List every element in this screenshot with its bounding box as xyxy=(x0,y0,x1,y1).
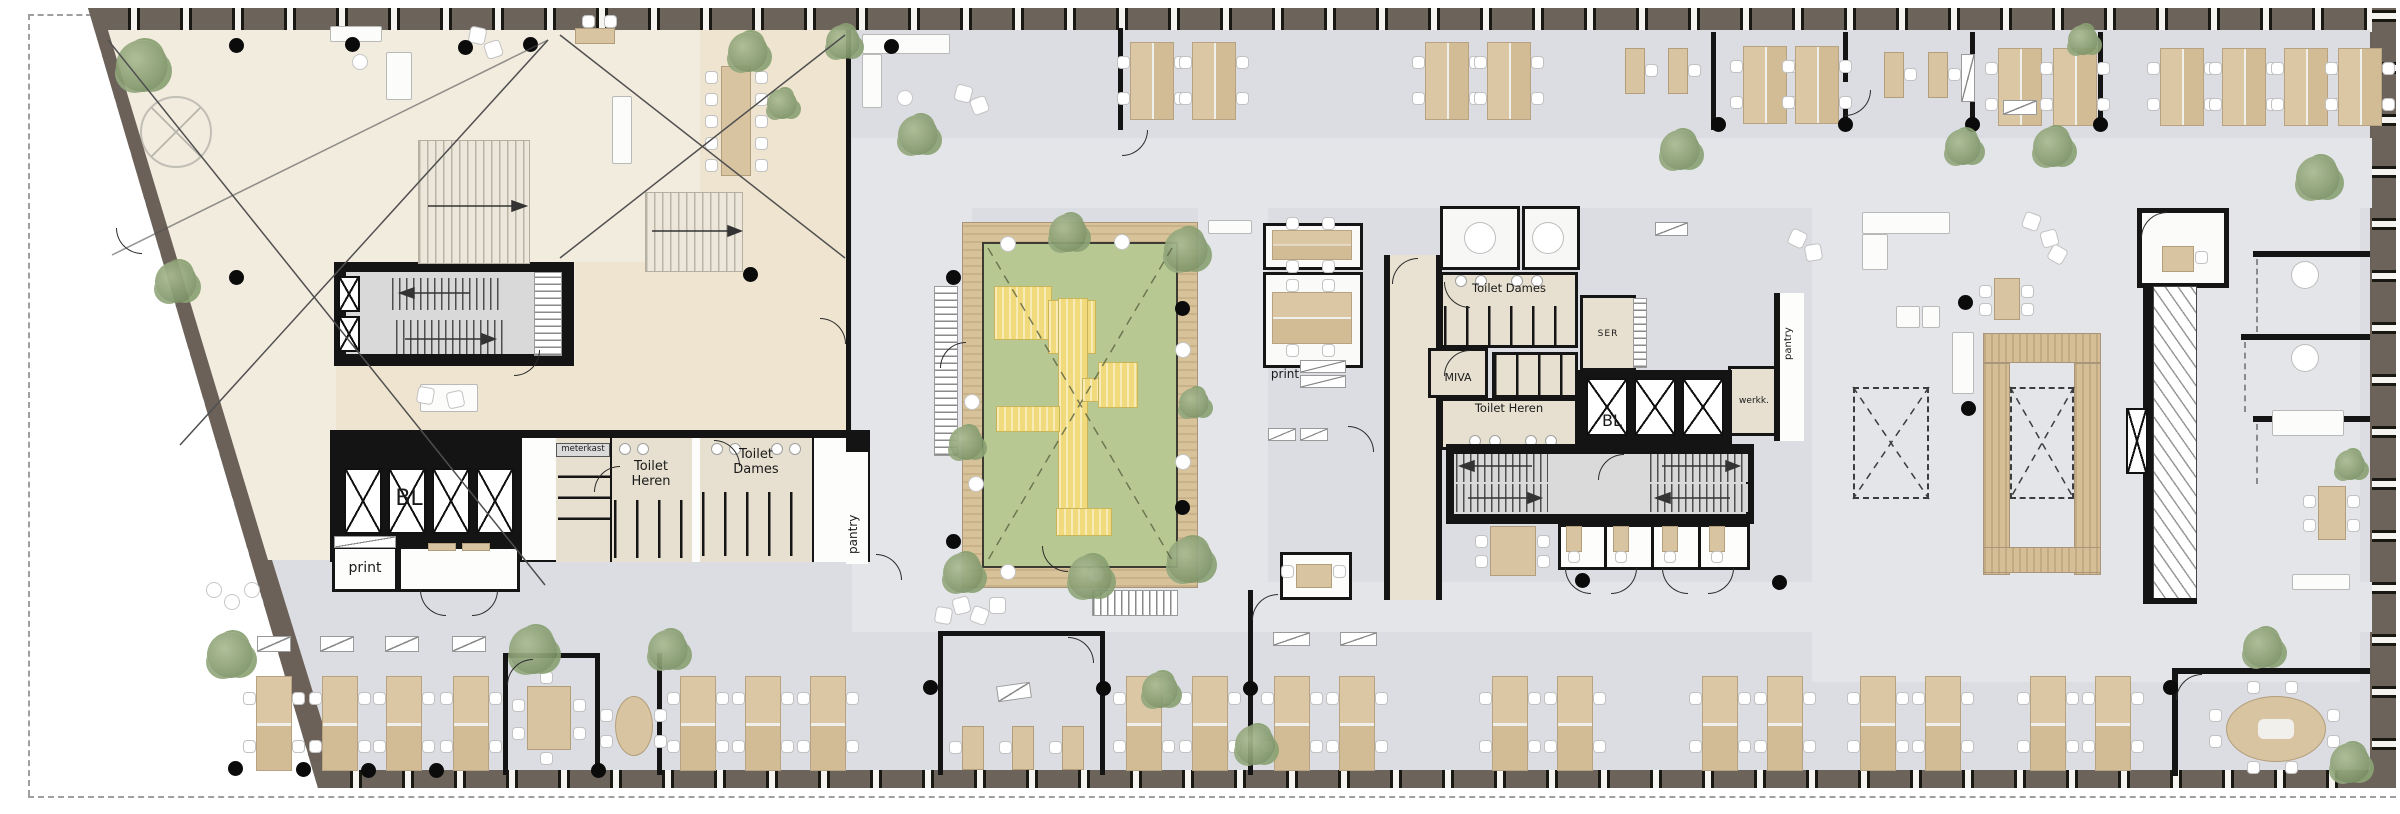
floor-plan-canvas: meterkast Toilet Heren Toilet Dames pant… xyxy=(0,0,2400,814)
left-toilet-dames-label: Toilet Dames xyxy=(716,448,796,478)
stair-direction-arrows xyxy=(400,201,1739,503)
mid-toilet-heren-label: Toilet Heren xyxy=(1466,402,1552,415)
left-toilet-heren-label: Toilet Heren xyxy=(613,460,689,490)
linework-overlay xyxy=(0,0,2400,814)
left-pantry-label: pantry xyxy=(847,478,861,554)
left-print-label: print xyxy=(336,560,394,576)
ser-label: SER xyxy=(1588,329,1628,339)
flex-zone-diagonals xyxy=(1853,387,2074,499)
left-elevator-label: BL xyxy=(386,486,432,511)
mid-elevator-label: BL xyxy=(1592,412,1632,430)
werkkast-label: werkk. xyxy=(1732,396,1776,406)
mid-print-label: print xyxy=(1264,368,1306,382)
miva-label: MIVA xyxy=(1432,372,1484,385)
void-cross-lines xyxy=(108,35,845,585)
courtyard-diagonals xyxy=(988,248,1172,560)
mid-pantry-label: pantry xyxy=(1783,298,1795,360)
mid-toilet-dames-label: Toilet Dames xyxy=(1466,282,1552,295)
meterkast-label: meterkast xyxy=(556,443,610,457)
